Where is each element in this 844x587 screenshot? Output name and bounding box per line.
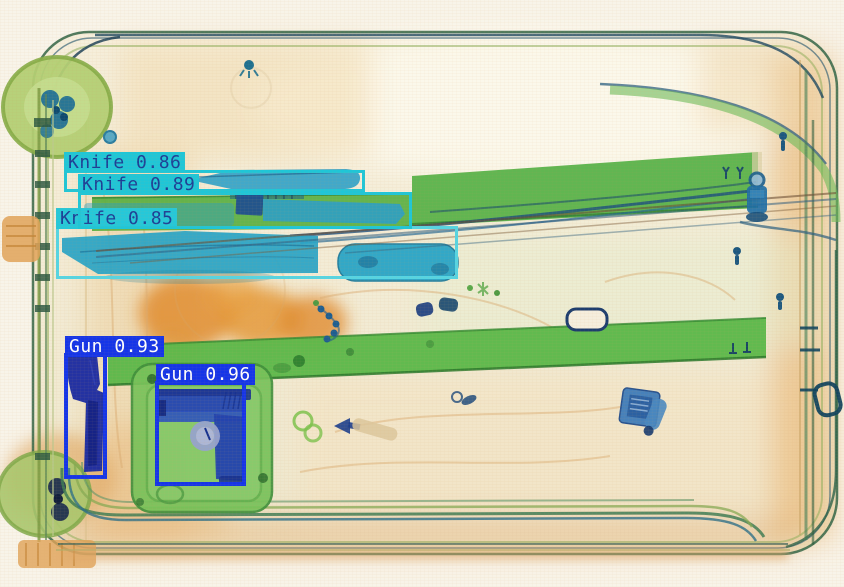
detection-label: Gun 0.93 <box>65 336 164 357</box>
detection-box-knife-0.89: Knife 0.89 <box>78 192 412 229</box>
detection-box-knife-0.85: Knife 0.85 <box>56 226 458 279</box>
detection-box-gun-0.96: Gun 0.96 <box>155 381 246 486</box>
xray-scan-image: Knife 0.86 Knife 0.85 Knife 0.89 Gun 0.9… <box>0 0 844 587</box>
detection-overlay: Knife 0.86 Knife 0.85 Knife 0.89 Gun 0.9… <box>0 0 844 587</box>
detection-label: Knife 0.86 <box>64 152 185 173</box>
detection-label: Knife 0.89 <box>78 174 199 195</box>
detection-box-gun-0.93: Gun 0.93 <box>64 353 107 479</box>
detection-label: Gun 0.96 <box>156 364 255 385</box>
